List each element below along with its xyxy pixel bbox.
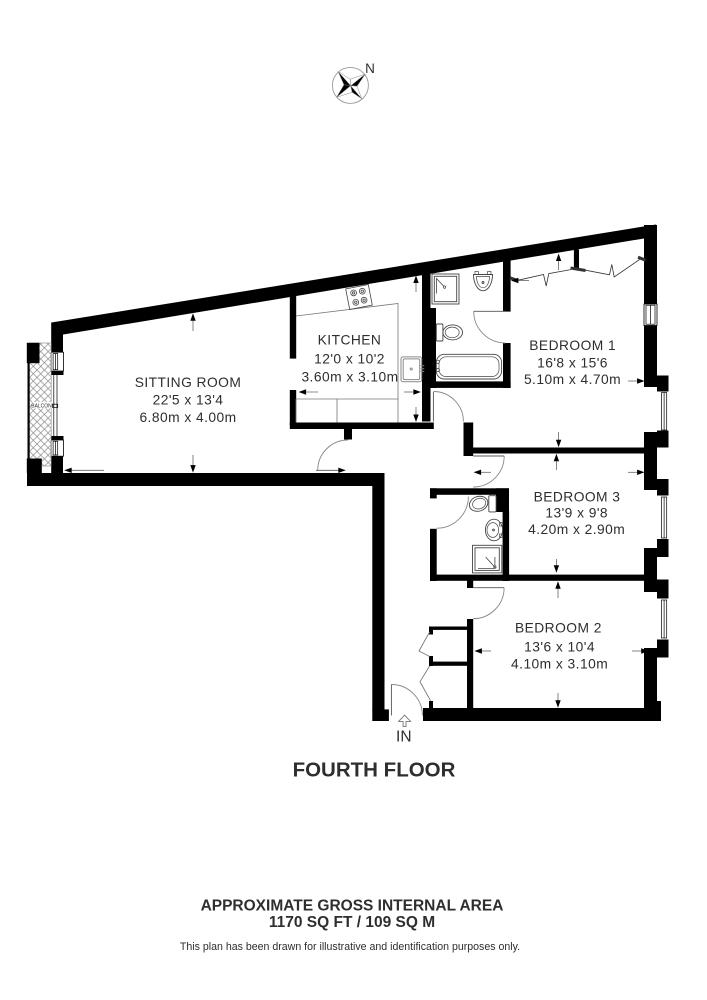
svg-text:3.60m x 3.10m: 3.60m x 3.10m — [301, 370, 398, 385]
svg-text:1170 SQ FT / 109 SQ M: 1170 SQ FT / 109 SQ M — [269, 914, 435, 931]
svg-text:This plan has been drawn for i: This plan has been drawn for illustrativ… — [180, 941, 520, 953]
svg-text:6.80m x 4.00m: 6.80m x 4.00m — [139, 410, 236, 425]
svg-text:13'9 x 9'8: 13'9 x 9'8 — [545, 505, 608, 520]
svg-text:12'0 x 10'2: 12'0 x 10'2 — [314, 351, 385, 366]
svg-text:16'8 x 15'6: 16'8 x 15'6 — [537, 355, 608, 370]
svg-text:BEDROOM 2: BEDROOM 2 — [515, 620, 602, 635]
svg-text:FOURTH FLOOR: FOURTH FLOOR — [293, 759, 456, 782]
svg-text:13'6 x 10'4: 13'6 x 10'4 — [524, 640, 595, 655]
svg-text:22'5 x 13'4: 22'5 x 13'4 — [153, 393, 224, 408]
svg-text:APPROXIMATE GROSS INTERNAL ARE: APPROXIMATE GROSS INTERNAL AREA — [201, 898, 504, 915]
svg-text:BEDROOM 3: BEDROOM 3 — [534, 490, 621, 505]
svg-text:4.20m x 2.90m: 4.20m x 2.90m — [528, 522, 625, 537]
svg-text:BALCONY: BALCONY — [31, 403, 56, 409]
svg-text:4.10m x 3.10m: 4.10m x 3.10m — [511, 657, 608, 672]
svg-text:N: N — [365, 61, 375, 76]
svg-text:SITTING ROOM: SITTING ROOM — [135, 375, 242, 390]
svg-text:IN: IN — [396, 728, 412, 745]
svg-text:5.10m x 4.70m: 5.10m x 4.70m — [524, 372, 621, 387]
svg-text:KITCHEN: KITCHEN — [318, 332, 382, 347]
svg-text:BEDROOM 1: BEDROOM 1 — [529, 338, 616, 353]
